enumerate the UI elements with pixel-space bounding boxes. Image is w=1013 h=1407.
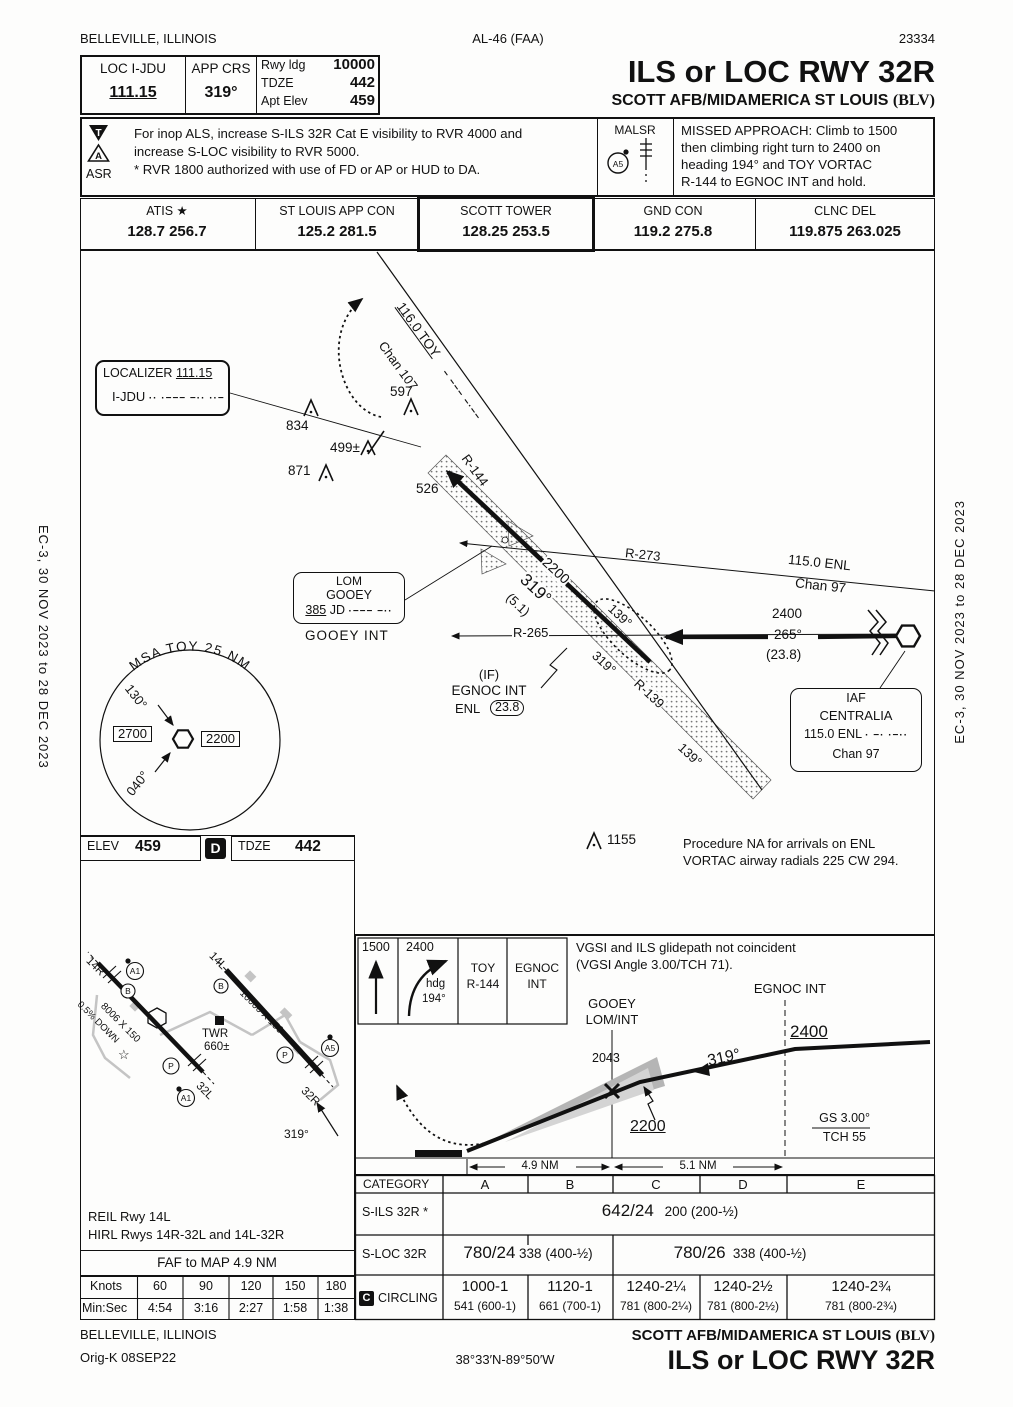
footer-coords: 38°33′N-89°50′W — [455, 1353, 554, 1367]
aptelev-value: 459 — [350, 93, 375, 110]
missed-line3: heading 194° and TOY VORTAC — [681, 158, 872, 173]
footer-orig: Orig-K 08SEP22 — [80, 1351, 176, 1365]
lom-box-type: LOM — [336, 575, 362, 588]
circling-badge: C — [359, 1291, 374, 1306]
scale-break-zigzag-1 — [868, 610, 880, 655]
localizer-id: I-JDU — [112, 389, 145, 404]
knots-table-lines — [80, 1276, 355, 1320]
note-line1: For inop ALS, increase S-ILS 32R Cat E v… — [134, 127, 522, 142]
twr-label: TWR — [202, 1028, 228, 1041]
iaf-type-label: IAF — [846, 692, 865, 706]
iaf-name-label: CENTRALIA — [820, 709, 893, 723]
ma-toy: TOY — [471, 962, 495, 975]
msa-arrow-040 — [155, 753, 170, 772]
circ-c-main: 1240-2¼ — [626, 1279, 685, 1296]
loc-label: LOC I-JDU — [100, 62, 166, 77]
chart-subtitle: SCOTT AFB/MIDAMERICA ST LOUIS (BLV) — [611, 92, 935, 110]
tch-label: TCH 55 — [823, 1131, 866, 1145]
if-nav-label: ENL — [455, 702, 480, 716]
lom-freq: 385 — [305, 603, 326, 617]
parking-right: P — [282, 1050, 288, 1060]
ma-1500: 1500 — [362, 941, 390, 955]
freq-clnc-value: 119.875 263.025 — [789, 224, 901, 241]
localizer-box-leader — [230, 393, 421, 447]
lom-box-name: GOOEY — [326, 589, 372, 603]
hirl-note: HIRL Rwys 14R-32L and 14L-32R — [88, 1228, 284, 1242]
lom-box-leader — [405, 546, 492, 600]
elev-value: 459 — [135, 838, 161, 855]
sils-minima: 642/24 200 (200-½) — [602, 1202, 738, 1221]
procedure-na-line1: Procedure NA for arrivals on ENL — [683, 837, 875, 851]
dist-49: 4.9 NM — [521, 1160, 558, 1173]
if-label: (IF) — [479, 668, 499, 682]
sils-main: 642/24 — [602, 1201, 654, 1220]
reil-note: REIL Rwy 14L — [88, 1210, 171, 1224]
circling-label: CIRCLING — [378, 1292, 438, 1306]
lom-id: JD — [330, 603, 345, 617]
feeder-alt-label: 2400 — [772, 607, 802, 622]
taxiway-a1-bottom: A1 — [181, 1093, 192, 1103]
malsr-icon-code: A5 — [613, 159, 624, 169]
faf-map-label: FAF to MAP 4.9 NM — [157, 1256, 277, 1271]
freq-appcon-name: ST LOUIS APP CON — [279, 205, 395, 219]
missed-approach-arc — [339, 299, 381, 417]
circ-b-main: 1120-1 — [547, 1279, 593, 1296]
footer-title: ILS or LOC RWY 32R — [667, 1346, 935, 1376]
header-ref: AL-46 (FAA) — [472, 32, 544, 46]
obstacle-1155-label: 1155 — [607, 833, 636, 848]
header-city: BELLEVILLE, ILLINOIS — [80, 32, 217, 46]
vortac-icon — [896, 626, 920, 647]
obstacle-834-label: 834 — [286, 419, 309, 434]
note-line2: increase S-LOC visibility to RVR 5000. — [134, 145, 360, 160]
freq-clnc-name: CLNC DEL — [814, 205, 876, 219]
circ-d-sub: 781 (800-2½) — [707, 1300, 779, 1313]
missed-line1: MISSED APPROACH: Climb to 1500 — [681, 124, 897, 139]
cat-e: E — [857, 1178, 866, 1192]
tdze-label: TDZE — [261, 77, 294, 91]
sketch-bearing-label: 319° — [284, 1128, 309, 1141]
sloc-ab-sub: 338 (400-½) — [519, 1246, 593, 1261]
runway-profile-bar — [415, 1150, 462, 1157]
toy-radial-line — [377, 252, 762, 790]
feeder-line-b — [818, 636, 898, 637]
note-line3: * RVR 1800 authorized with use of FD or … — [134, 163, 480, 178]
freq-tower-name: SCOTT TOWER — [460, 205, 552, 219]
taxiway-b-right: B — [218, 981, 224, 991]
missed-line4: R-144 to EGNOC INT and hold. — [681, 175, 866, 190]
loc-freq: 111.15 — [109, 84, 156, 102]
localizer-morse: ·· ·−−− −·· ··− — [149, 393, 225, 404]
circ-e-sub: 781 (800-2¾) — [825, 1300, 897, 1313]
freq-div2 — [755, 198, 756, 250]
ma-int: INT — [527, 978, 546, 991]
sketch-tdze-value: 442 — [295, 838, 321, 855]
circ-a-sub: 541 (600-1) — [454, 1300, 516, 1313]
msa-arrow-130 — [158, 705, 173, 725]
msa-alt-2200: 2200 — [201, 731, 240, 747]
scale-break-zigzag-2 — [876, 610, 888, 655]
sloc-label: S-LOC 32R — [362, 1248, 427, 1262]
sloc-ce-sub: 338 (400-½) — [733, 1246, 807, 1261]
circ-a-main: 1000-1 — [462, 1279, 509, 1296]
circ-e-main: 1240-2¾ — [831, 1279, 890, 1296]
category-header: CATEGORY — [363, 1178, 429, 1191]
circ-d-main: 1240-2½ — [713, 1279, 772, 1296]
taxiway-a5: A5 — [325, 1043, 336, 1053]
sketch-tdze-label: TDZE — [238, 840, 271, 854]
cycle-note-left: EC-3, 30 NOV 2023 to 28 DEC 2023 — [36, 525, 51, 769]
malsr-label: MALSR — [614, 124, 655, 137]
sloc-ce-main: 780/26 — [674, 1243, 726, 1262]
asr-label: ASR — [86, 168, 112, 182]
parking-left: P — [168, 1061, 174, 1071]
elev-label: ELEV — [87, 840, 119, 854]
freq-div1 — [255, 198, 256, 250]
iaf-chan-label: Chan 97 — [832, 748, 879, 762]
taxiway-a1-top: A1 — [130, 966, 141, 976]
if-fix-leader — [541, 648, 567, 688]
cat-b: B — [566, 1178, 575, 1192]
footer-city: BELLEVILLE, ILLINOIS — [80, 1328, 217, 1342]
if-name-label: EGNOC INT — [451, 684, 526, 699]
lom-feather-sw — [481, 549, 506, 574]
cat-c: C — [651, 1178, 660, 1192]
ma-egnoc: EGNOC — [515, 962, 559, 975]
malsr-light-icon — [640, 138, 652, 182]
gs-label: GS 3.00° — [819, 1112, 870, 1126]
feeder-crs-label: 265° — [774, 628, 802, 643]
iaf-freq: 115.0 ENL — [804, 727, 862, 741]
lom-box-freq: 385 JD ·−−− −·· — [305, 604, 392, 618]
takeoff-minimums-letter: T — [95, 128, 101, 139]
freq-gnd-name: GND CON — [643, 205, 702, 219]
freq-gnd-value: 119.2 275.8 — [634, 224, 712, 241]
profile-2200: 2200 — [630, 1118, 666, 1136]
localizer-box-line1: LOCALIZER 111.15 — [103, 367, 212, 381]
chart-title: ILS or LOC RWY 32R — [628, 55, 935, 89]
briefing-div1 — [185, 55, 186, 115]
malsr-icon-dot — [623, 149, 628, 154]
ma-194: 194° — [422, 993, 446, 1006]
rwyldg-label: Rwy ldg — [261, 59, 305, 73]
appcrs-label: APP CRS — [191, 62, 250, 77]
final-bearing-arrow — [317, 1103, 338, 1136]
footer-airport-name: SCOTT AFB/MIDAMERICA ST LOUIS — [632, 1327, 896, 1344]
feeder-arrowhead — [663, 629, 683, 645]
appcrs-value: 319° — [204, 84, 237, 102]
briefing-div2 — [256, 55, 257, 115]
declared-distance-badge: D — [205, 838, 226, 859]
freq-appcon-value: 125.2 281.5 — [297, 224, 376, 241]
chart-subtitle-code: (BLV) — [893, 92, 935, 109]
feeder-dist-label: (23.8) — [766, 648, 801, 663]
footer-airport-code: (BLV) — [896, 1328, 935, 1344]
tdze-value: 442 — [350, 75, 375, 92]
obstacle-499-label: 499± — [330, 441, 360, 456]
obstacle-526-label: 526 — [416, 482, 439, 497]
sils-sub: 200 (200-½) — [665, 1204, 739, 1219]
profile-2400: 2400 — [790, 1023, 828, 1042]
freq-tower-value: 128.25 253.5 — [462, 224, 550, 241]
rwyldg-value: 10000 — [333, 57, 375, 74]
vgsi-note-1: VGSI and ILS glidepath not coincident — [576, 941, 796, 955]
cat-d: D — [738, 1178, 747, 1192]
sloc-ab-minima: 780/24 338 (400-½) — [463, 1244, 592, 1263]
cycle-note-right: EC-3, 30 NOV 2023 to 28 DEC 2023 — [952, 500, 967, 744]
iaf-freq-label: 115.0 ENL · −· ·−·· — [804, 728, 908, 742]
tower-icon — [215, 1016, 224, 1025]
aptelev-label: Apt Elev — [261, 95, 308, 109]
lom-fix-dot — [502, 537, 508, 543]
chart-subtitle-name: SCOTT AFB/MIDAMERICA ST LOUIS — [611, 92, 892, 109]
freq-atis-value: 128.7 256.7 — [127, 224, 206, 241]
profile-gooey-label1: GOOEY — [588, 997, 636, 1011]
missed-line2: then climbing right turn to 2400 on — [681, 141, 880, 156]
sloc-ab-main: 780/24 — [463, 1243, 515, 1262]
localizer-word: LOCALIZER — [103, 366, 172, 380]
star-icon: ☆ — [118, 1048, 130, 1062]
procedure-na-line2: VORTAC airway radials 225 CW 294. — [683, 854, 899, 868]
obstacle-597-label: 597 — [390, 385, 413, 400]
ma-hdg: hdg — [426, 978, 445, 991]
dist-51: 5.1 NM — [679, 1160, 716, 1173]
footer-airport: SCOTT AFB/MIDAMERICA ST LOUIS (BLV) — [632, 1328, 935, 1345]
sils-label: S-ILS 32R * — [362, 1206, 428, 1220]
header-number: 23334 — [899, 32, 935, 46]
lom-morse: ·−−− −·· — [348, 606, 392, 617]
taxiway-b-left: B — [125, 986, 131, 996]
msa-hexagon — [173, 730, 193, 747]
circ-c-sub: 781 (800-2¼) — [620, 1300, 692, 1313]
msa-alt-2700: 2700 — [113, 726, 152, 742]
sloc-ce-minima: 780/26 338 (400-½) — [674, 1244, 807, 1263]
circle-letters: A1 A1 A5 P P B B — [125, 966, 335, 1103]
if-dist-box: 23.8 — [490, 700, 524, 716]
ma-2400: 2400 — [406, 941, 434, 955]
missed-dotted-curve — [397, 1086, 490, 1145]
localizer-box-line2: I-JDU ·· ·−−− −·· ··− — [112, 390, 225, 404]
approach-chart: EC-3, 30 NOV 2023 to 28 DEC 2023 EC-3, 3… — [0, 0, 1013, 1407]
localizer-freq: 111.15 — [176, 366, 212, 380]
msa-arc-text: MSA TOY 25 NM — [126, 639, 253, 674]
vgsi-note-2: (VGSI Angle 3.00/TCH 71). — [576, 958, 733, 972]
alternate-minimums-letter: A — [95, 151, 102, 162]
cat-a: A — [481, 1178, 490, 1192]
obstacle-871-label: 871 — [288, 464, 311, 479]
ma-r144: R-144 — [467, 978, 500, 991]
twr-elev-label: 660± — [204, 1041, 230, 1054]
gooey-int-label: GOOEY INT — [305, 629, 389, 644]
profile-egnoc-label: EGNOC INT — [754, 982, 826, 996]
iaf-morse: · −· ·−·· — [865, 730, 908, 741]
circ-b-sub: 661 (700-1) — [539, 1300, 601, 1313]
profile-gooey-label2: LOM/INT — [586, 1013, 639, 1027]
r265-label: R-265 — [512, 626, 549, 640]
iaf-box-leader — [880, 651, 905, 688]
freq-atis-name: ATIS ★ — [146, 205, 188, 219]
profile-2043: 2043 — [592, 1052, 620, 1066]
